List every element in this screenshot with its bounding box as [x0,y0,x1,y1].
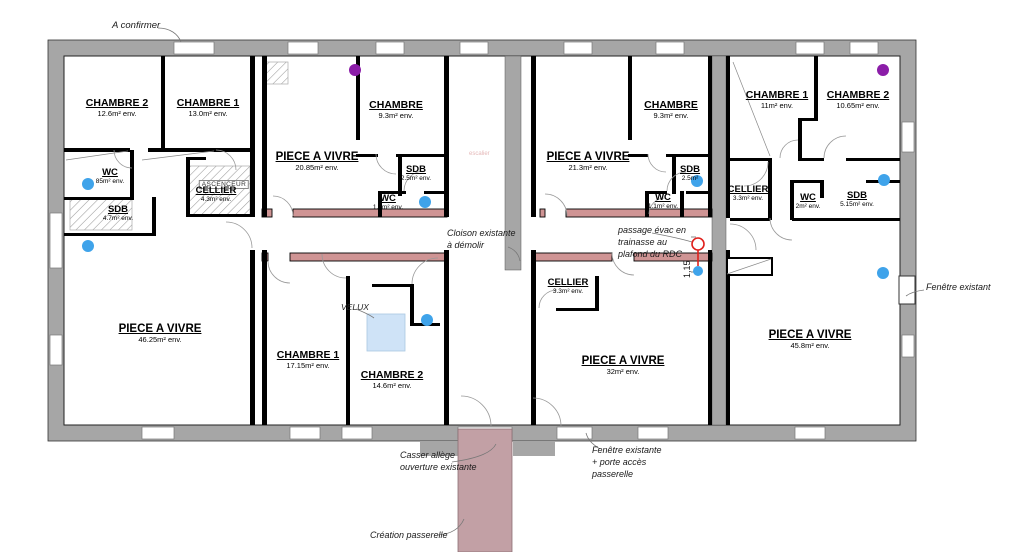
blue-dot [877,267,889,279]
stair-faint-label: escalier [469,151,490,157]
room-label-apt3-piece-a-vivre: PIECE A VIVRE21.3m² env. [547,151,630,172]
annotation-fenetre-porte-passerelle: Fenêtre existante + porte accès passerel… [592,444,662,480]
room-label-apt1-wc: WC85m² env. [96,168,124,185]
floorplan-drawing [0,0,1035,552]
room-label-apt2-sdb: SDB2.5m² env. [401,165,431,182]
room-label-apt1-piece-a-vivre: PIECE A VIVRE46.25m² env. [119,323,202,344]
framed-window [899,276,915,304]
purple-dot [877,64,889,76]
velux-skylight [367,314,405,351]
floor-plan: CHAMBRE 212.6m² env. CHAMBRE 113.0m² env… [0,0,1035,552]
room-label-apt4-wc: WC2m² env. [796,193,821,210]
annotation-passage-evac: passage évac en trainasse au plafond du … [618,224,686,260]
room-label-apt3-chambre: CHAMBRE9.3m² env. [644,100,698,120]
room-label-apt3-cellier: CELLIER3.3m² env. [548,278,589,295]
room-label-apt1-cellier: CELLIER4.3m² env. [196,186,237,203]
room-label-apt1-chambre1: CHAMBRE 113.0m² env. [177,98,239,118]
room-label-apt1-chambre2: CHAMBRE 212.6m² env. [86,98,148,118]
blue-dot [878,174,890,186]
annotation-casser-allege: Casser allège ouverture existante [400,449,477,473]
annotation-a-confirmer: A confirmer [112,20,160,33]
room-label-apt4-cellier: CELLIER3.3m² env. [728,185,769,202]
blue-dot [82,178,94,190]
blue-dot [693,266,703,276]
room-label-apt2-wc: WC1.1m² env. [373,194,403,211]
room-label-apt4-piece-a-vivre: PIECE A VIVRE45.8m² env. [769,329,852,350]
purple-dot [349,64,361,76]
blue-dot [421,314,433,326]
room-label-apt1-sdb: SDB4.7m² env. [103,205,133,222]
room-label-apt3-sdb: SDB2.5m² [680,165,700,182]
annotation-cloison-a-demolir: Cloison existante à démolir [447,227,516,251]
room-label-apt4-chambre2: CHAMBRE 210.65m² env. [827,90,889,110]
annotation-creation-passerelle: Création passerelle [370,529,448,541]
room-label-apt4-sdb: SDB5.15m² env. [840,191,874,208]
room-label-apt2-chambre2: CHAMBRE 214.6m² env. [361,370,423,390]
room-label-apt4-chambre1: CHAMBRE 111m² env. [746,90,808,110]
annotation-fenetre-existant: Fenêtre existant [926,281,991,293]
room-label-apt3-piece-a-vivre-2: PIECE A VIVRE32m² env. [582,355,665,376]
velux-label: VELUX [341,302,369,312]
party-wall [712,56,726,425]
room-label-apt3-wc: WC1.1m² env. [648,193,678,210]
dimension-115: 1,15 [682,260,692,278]
passerelle [458,429,512,552]
room-label-apt2-chambre: CHAMBRE9.3m² env. [369,100,423,120]
room-label-apt2-chambre1: CHAMBRE 117.15m² env. [277,350,339,370]
blue-dot [82,240,94,252]
room-label-apt2-piece-a-vivre: PIECE A VIVRE20.85m² env. [276,151,359,172]
blue-dot [419,196,431,208]
